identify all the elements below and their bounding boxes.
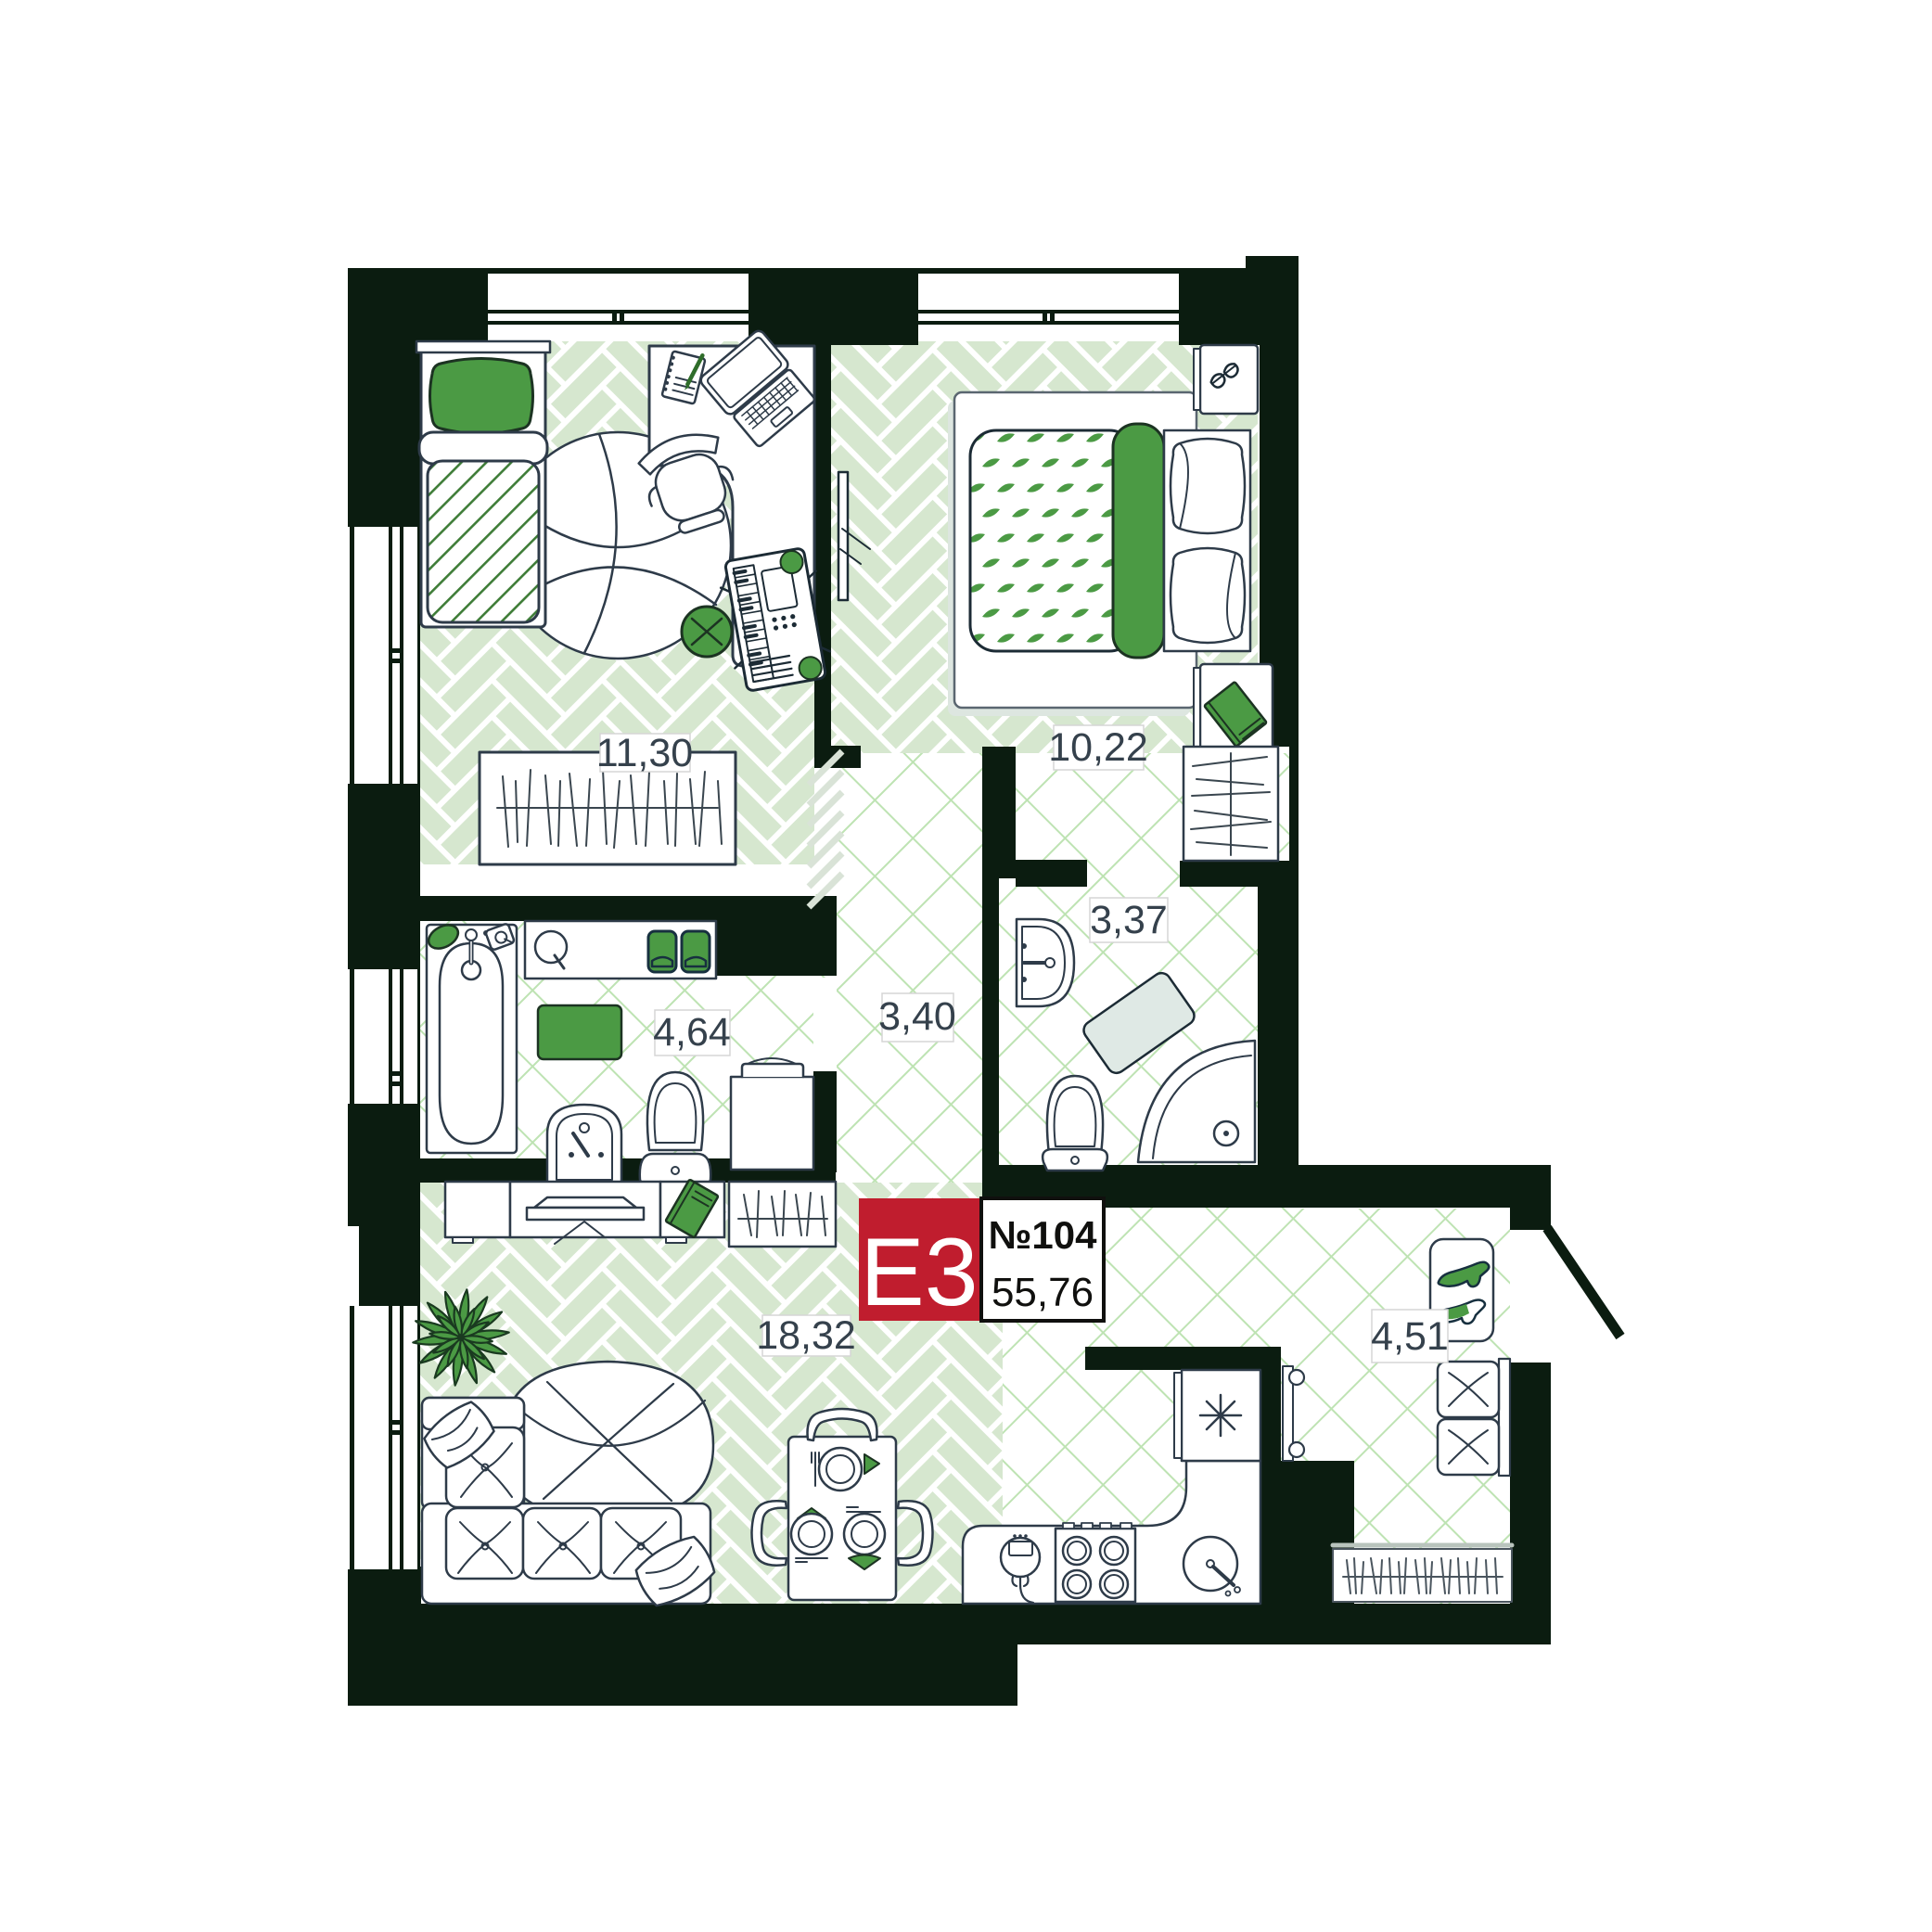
svg-text:4,64: 4,64	[653, 1010, 731, 1055]
svg-text:3,40: 3,40	[878, 994, 956, 1039]
svg-text:№104: №104	[989, 1213, 1098, 1257]
svg-text:E3: E3	[860, 1219, 978, 1326]
svg-text:4,51: 4,51	[1371, 1314, 1449, 1359]
svg-text:55,76: 55,76	[992, 1270, 1094, 1315]
svg-text:11,30: 11,30	[596, 731, 693, 775]
svg-text:3,37: 3,37	[1090, 898, 1168, 942]
svg-text:18,32: 18,32	[756, 1313, 856, 1358]
svg-text:10,22: 10,22	[1048, 725, 1148, 770]
